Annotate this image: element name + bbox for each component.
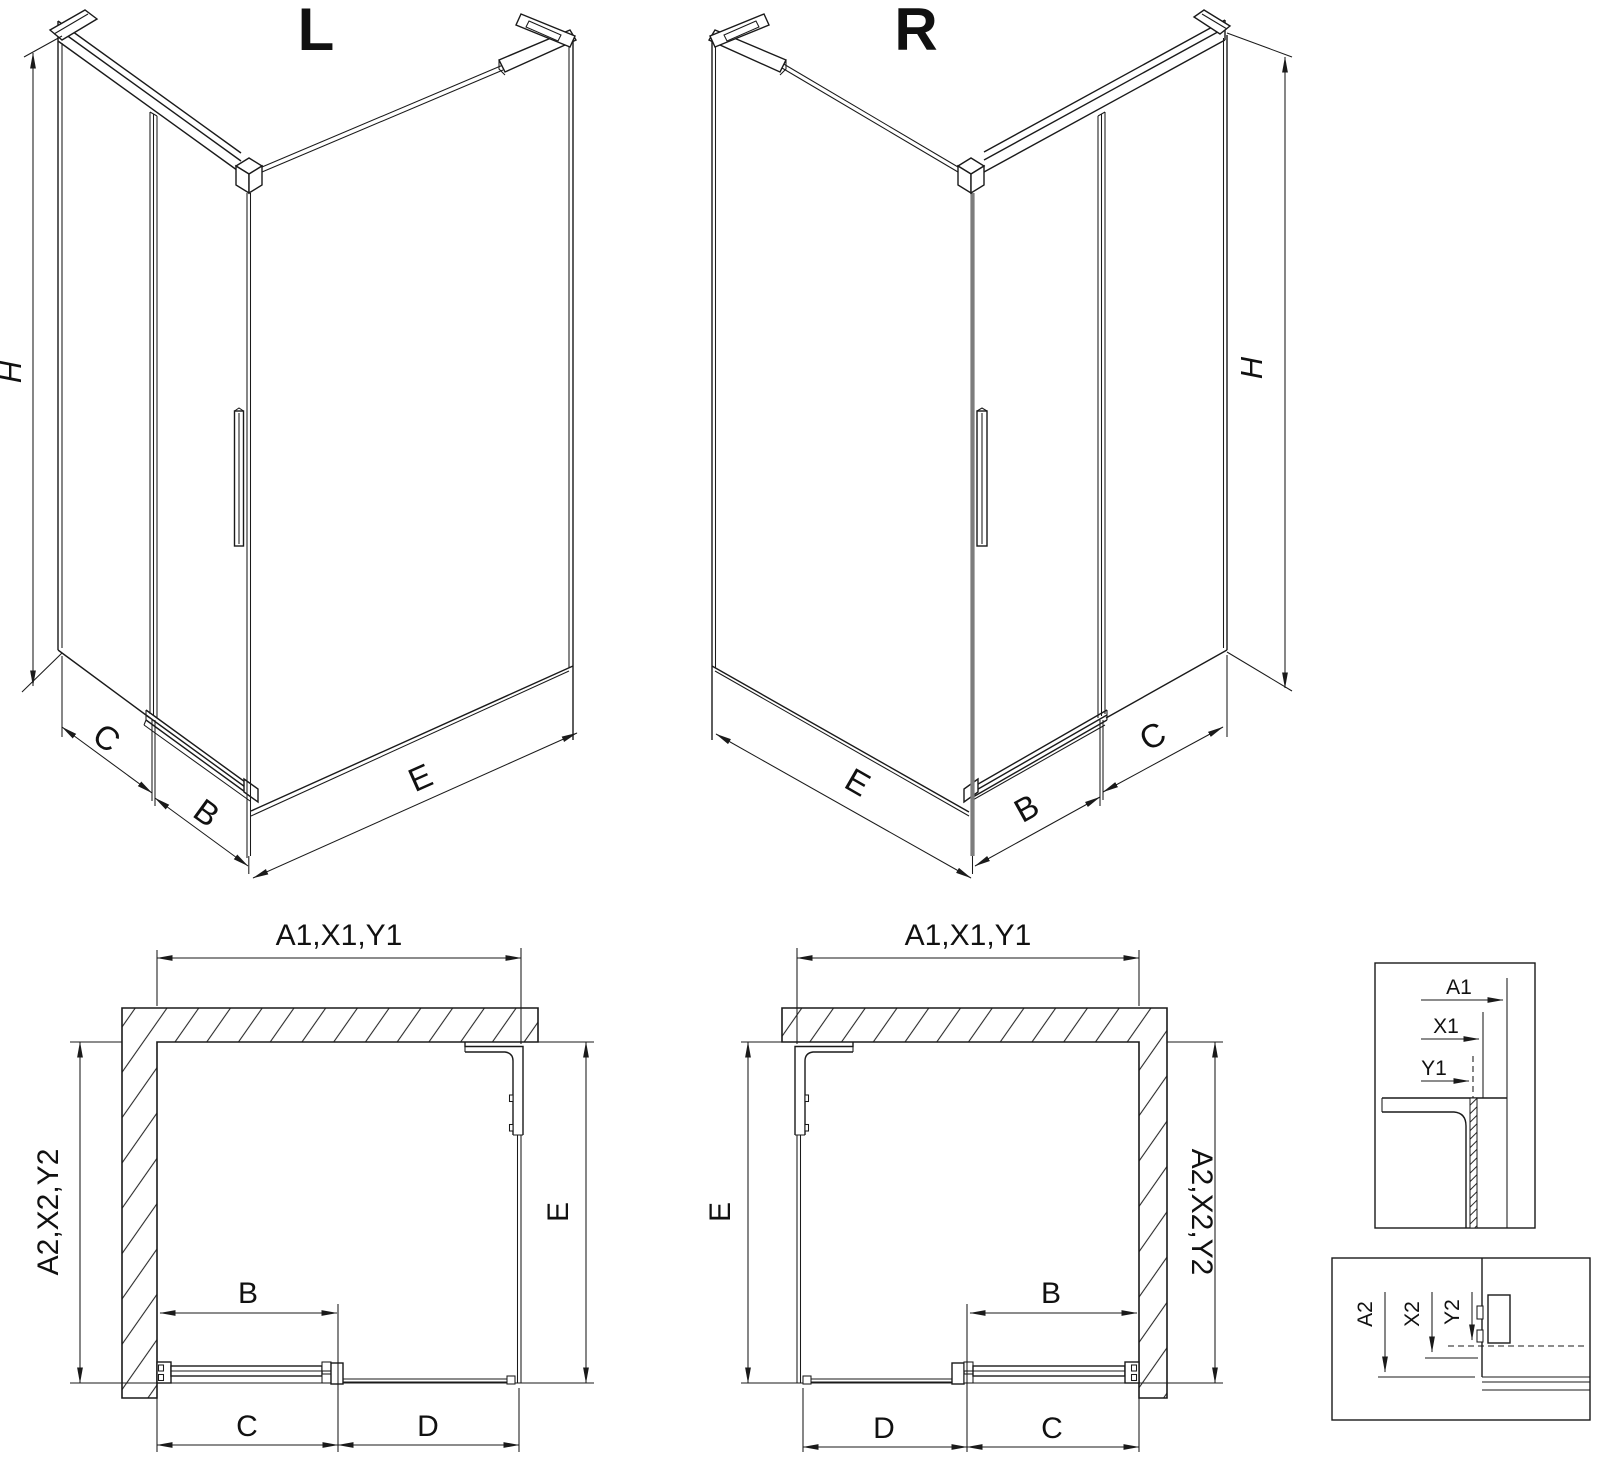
side-screen-right [251, 40, 573, 816]
dim-c-right-view [1103, 655, 1227, 800]
dim-e-left [253, 733, 577, 878]
dim-label-e-right-view: E [839, 761, 877, 804]
bottom-track [144, 710, 258, 802]
wall-bracket-top-right [1194, 10, 1230, 34]
detail-box-bottom: A2 X2 Y2 [1332, 1258, 1590, 1420]
detail-label-x2: X2 [1401, 1301, 1424, 1327]
dim-label-a2-plan-right: A2,X2,Y2 [1185, 1149, 1218, 1276]
dim-label-d-plan-left: D [417, 1410, 439, 1443]
dim-label-b-plan-left: B [238, 1277, 258, 1310]
side-screen-plan [465, 1042, 523, 1383]
detail-label-x1: X1 [1433, 1015, 1459, 1038]
dim-label-e-plan-right: E [704, 1202, 737, 1222]
dim-e-right-view [716, 734, 973, 878]
door-handle [977, 408, 987, 546]
dim-label-e-left: E [403, 756, 438, 799]
detail-label-a1: A1 [1446, 976, 1472, 999]
sliding-door-left [150, 112, 157, 718]
dim-label-h-right: H [1234, 356, 1269, 379]
wall-profile-section [1382, 1098, 1507, 1228]
wall-bracket-top-left [709, 14, 786, 75]
wall-bracket-top-right [499, 14, 576, 75]
shower-enclosure-technical-drawing: H C B E L [0, 0, 1600, 1458]
fixed-panel-right [1106, 35, 1227, 718]
dim-label-b-left: B [187, 791, 227, 834]
iso-view-right: E B C H R [709, 0, 1292, 878]
wall-hatched [122, 1008, 538, 1398]
dim-label-c-plan-right: C [1041, 1412, 1063, 1445]
view-title-left: L [298, 0, 335, 63]
dim-label-a2-plan-left: A2,X2,Y2 [32, 1149, 65, 1276]
door-handle [235, 408, 244, 546]
drawing-sheet: H C B E L [0, 0, 1600, 1458]
detail-label-y1: Y1 [1421, 1057, 1447, 1080]
sliding-door-plan [803, 1362, 1139, 1384]
bottom-track [964, 710, 1107, 802]
view-title-right: R [894, 0, 937, 63]
side-screen-plan [795, 1042, 853, 1383]
track-profile-section [1477, 1258, 1590, 1390]
iso-view-left: H C B E L [0, 0, 577, 878]
plan-view-left: A1,X1,Y1 A2,X2,Y2 E B C D [32, 919, 594, 1452]
plan-view-right: A1,X1,Y1 E A2,X2,Y2 B D C [704, 919, 1223, 1452]
dim-label-c-left: C [86, 716, 127, 760]
dim-height-left [22, 36, 62, 692]
sliding-door-plan [157, 1362, 515, 1384]
detail-box-top: A1 X1 Y1 [1375, 963, 1535, 1228]
detail-label-y2: Y2 [1441, 1299, 1464, 1325]
wall-hatched [782, 1008, 1167, 1398]
dim-label-d-plan-right: D [873, 1412, 895, 1445]
dim-label-b-plan-right: B [1041, 1277, 1061, 1310]
sliding-door-right [1098, 112, 1105, 718]
dim-label-c-plan-left: C [236, 1410, 258, 1443]
fixed-panel-left [58, 41, 150, 718]
dim-label-e-plan-left: E [542, 1202, 575, 1222]
side-screen-left [712, 38, 969, 816]
dim-label-b-right-view: B [1008, 786, 1045, 829]
dim-label-h-left: H [0, 360, 28, 383]
dim-label-a1-plan-left: A1,X1,Y1 [276, 919, 403, 952]
dim-d-c-plan-right [803, 1388, 1139, 1452]
dim-label-a1-plan-right: A1,X1,Y1 [905, 919, 1032, 952]
detail-label-a2: A2 [1354, 1301, 1377, 1327]
wall-bracket-top-left [50, 10, 97, 40]
dim-label-c-right-view: C [1133, 714, 1172, 758]
dim-b-right-view [975, 720, 1100, 866]
